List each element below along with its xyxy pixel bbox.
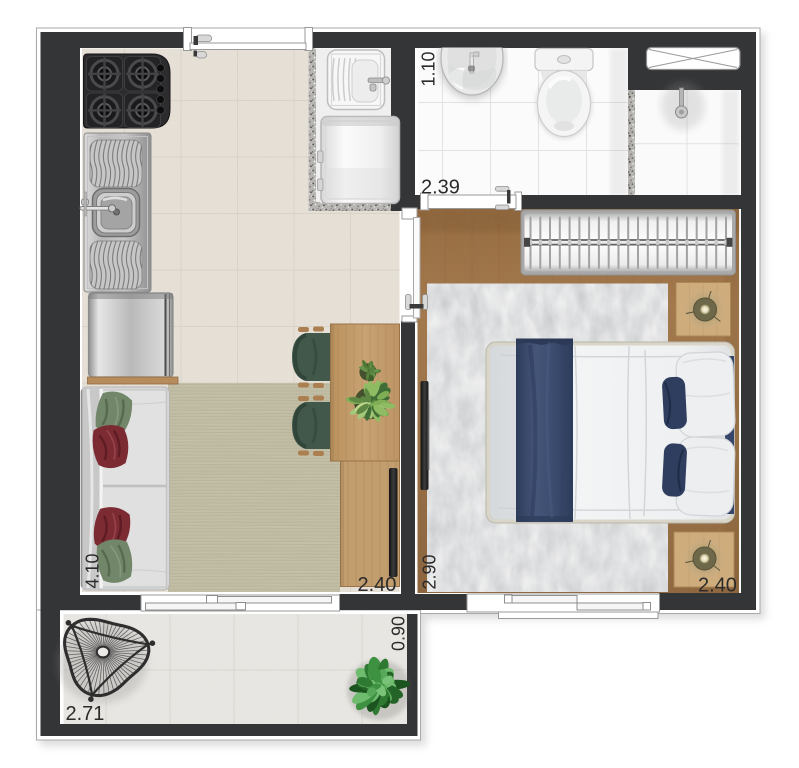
svg-text:2.71: 2.71 — [66, 703, 105, 725]
svg-text:2.90: 2.90 — [420, 554, 440, 589]
svg-text:2.39: 2.39 — [421, 177, 460, 199]
svg-text:2.40: 2.40 — [698, 575, 737, 597]
svg-text:4.10: 4.10 — [83, 553, 103, 588]
svg-text:0.90: 0.90 — [389, 616, 409, 651]
svg-text:2.40: 2.40 — [358, 574, 397, 596]
svg-text:1.10: 1.10 — [419, 51, 439, 86]
